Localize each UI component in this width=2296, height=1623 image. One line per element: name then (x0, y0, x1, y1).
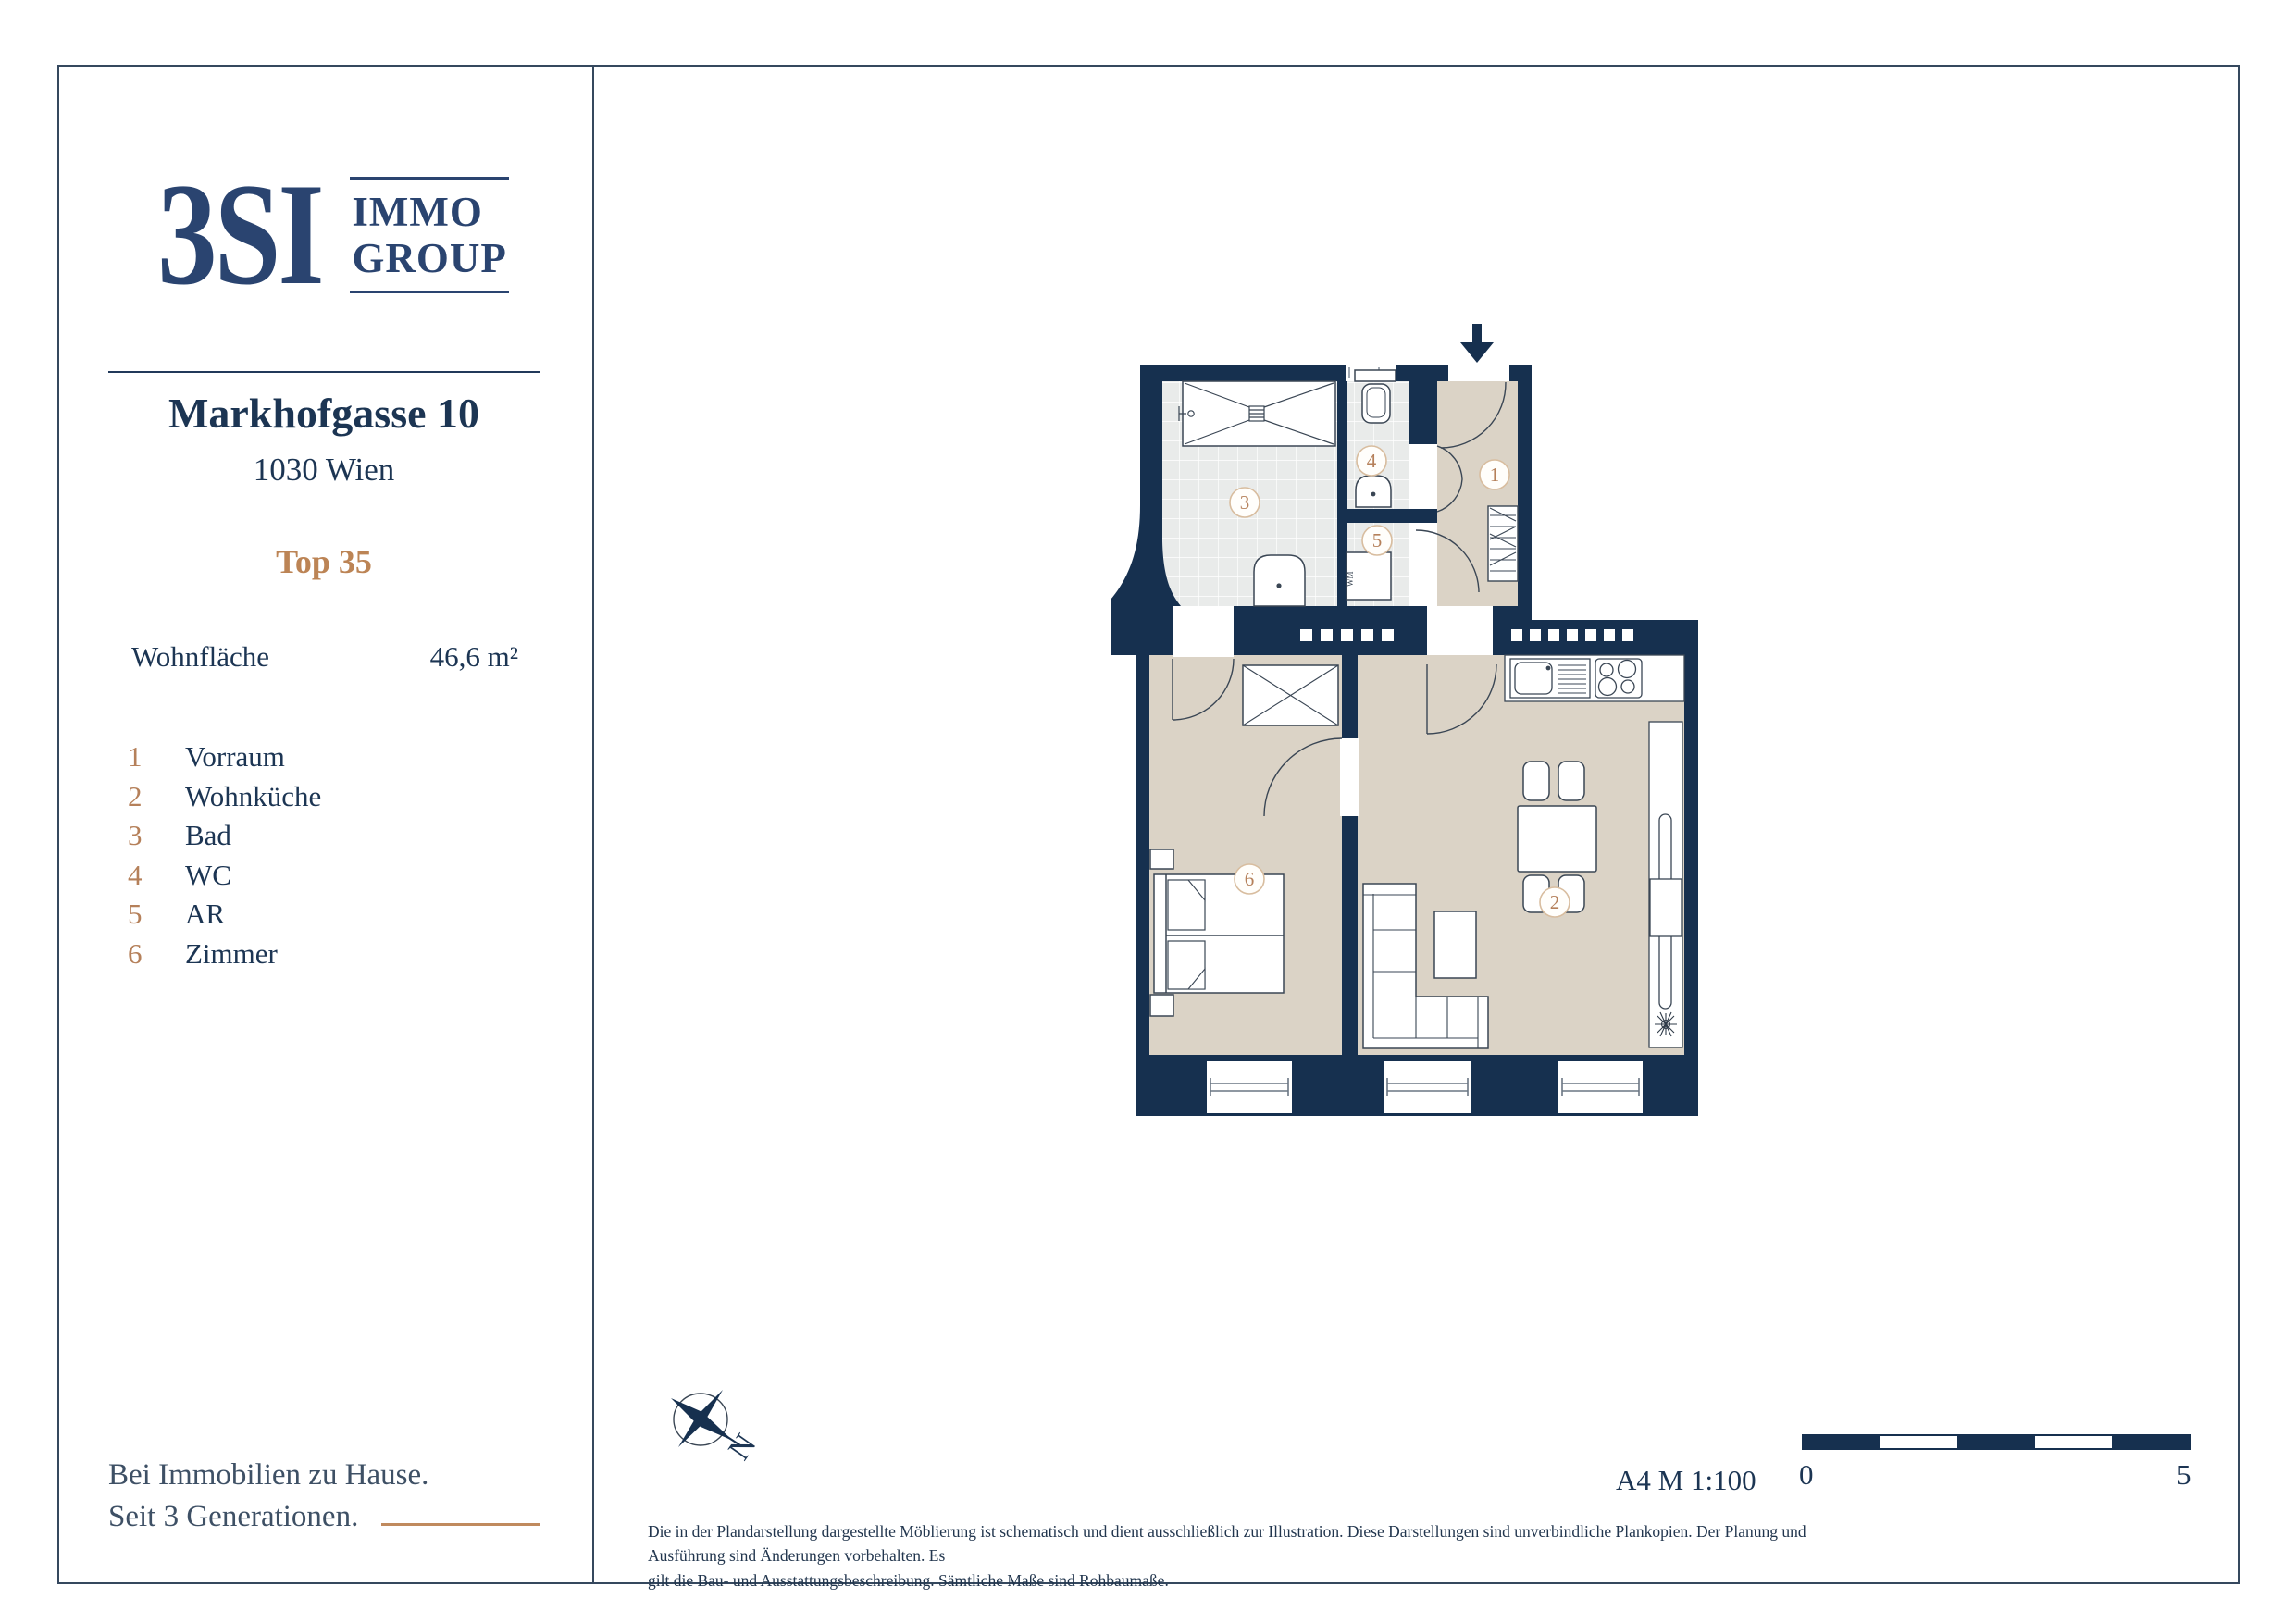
room-badge-5: 5 (1372, 529, 1383, 551)
living-area-row: Wohnfläche 46,6 m² (131, 640, 518, 674)
legend-item-bad: 3 Bad (128, 816, 321, 856)
window-3 (1558, 1061, 1643, 1113)
legend-number: 3 (128, 819, 185, 852)
living-area-value: 46,6 m² (430, 640, 518, 674)
entrance-arrow-icon (1460, 324, 1494, 363)
header-divider (108, 371, 540, 373)
legend-number: 5 (128, 898, 185, 931)
disclaimer-line2: gilt die Bau- und Ausstattungsbeschreibu… (648, 1568, 1832, 1592)
floorplan-page: 3SI IMMO GROUP Markhofgasse 10 1030 Wien… (0, 0, 2296, 1623)
brand-logo: 3SI IMMO GROUP (157, 162, 509, 308)
sideboard (1649, 722, 1682, 1047)
room-badge-1: 1 (1490, 464, 1500, 486)
nightstand-bottom (1150, 995, 1173, 1016)
bad-door-opening (1173, 606, 1234, 657)
plan-scale-note: A4 M 1:100 (1616, 1464, 1756, 1497)
vorraum-wardrobe-icon (1488, 506, 1518, 581)
wc-sink-icon (1356, 476, 1391, 507)
logo-immo-group-text: IMMO GROUP (350, 177, 509, 294)
panel-divider (592, 65, 594, 1584)
wc-door-opening (1409, 444, 1437, 509)
room-badge-3: 3 (1240, 491, 1250, 514)
window-2 (1384, 1061, 1471, 1113)
unit-label: Top 35 (56, 542, 592, 581)
compass-icon: N (659, 1384, 779, 1514)
legend-item-vorraum: 1 Vorraum (128, 737, 321, 777)
legend-item-zimmer: 6 Zimmer (128, 935, 321, 974)
window-1 (1207, 1061, 1292, 1113)
room-badge-4: 4 (1367, 450, 1377, 472)
address-line2: 1030 Wien (56, 452, 592, 489)
legend-label: WC (185, 859, 231, 892)
room-badge-6: 6 (1245, 868, 1255, 890)
scale-bar (1802, 1434, 2191, 1450)
disclaimer-line1: Die in der Plandarstellung dargestellte … (648, 1519, 1832, 1568)
disclaimer-text: Die in der Plandarstellung dargestellte … (648, 1519, 1832, 1592)
logo-sub-line2: GROUP (352, 235, 507, 281)
floorplan-drawing: WM (1101, 324, 1731, 1120)
nightstand-top (1150, 849, 1173, 869)
tagline-accent-line (381, 1523, 540, 1526)
living-area-label: Wohnfläche (131, 640, 269, 674)
scale-bar-start-label: 0 (1799, 1458, 1814, 1492)
legend-number: 6 (128, 937, 185, 971)
tagline-line1: Bei Immobilien zu Hause. (108, 1455, 428, 1496)
legend-item-wc: 4 WC (128, 856, 321, 896)
room-badge-2: 2 (1550, 891, 1560, 913)
kitchen-counter (1505, 655, 1684, 701)
legend-number: 4 (128, 859, 185, 892)
scale-bar-end-label: 5 (2177, 1458, 2191, 1492)
bath-sink-icon (1254, 555, 1305, 606)
chair-icon (1558, 762, 1584, 800)
plant-icon (1655, 1012, 1677, 1036)
logo-3si-text: 3SI (157, 162, 321, 308)
coffee-table-icon (1434, 911, 1476, 978)
legend-item-wohnkueche: 2 Wohnküche (128, 777, 321, 817)
address-line1: Markhofgasse 10 (56, 389, 592, 438)
legend-label: Bad (185, 819, 231, 852)
legend-label: Vorraum (185, 740, 285, 774)
legend-label: Zimmer (185, 937, 278, 971)
dining-table-icon (1518, 806, 1596, 872)
legend-label: AR (185, 898, 225, 931)
compass-north-label: N (722, 1428, 763, 1466)
tagline-line2: Seit 3 Generationen. (108, 1496, 428, 1538)
legend-item-ar: 5 AR (128, 895, 321, 935)
logo-sub-line1: IMMO (352, 189, 507, 235)
room-legend: 1 Vorraum 2 Wohnküche 3 Bad 4 WC 5 AR 6 … (128, 737, 321, 973)
legend-number: 1 (128, 740, 185, 774)
legend-number: 2 (128, 780, 185, 813)
entrance-opening (1448, 363, 1509, 381)
ar-door-opening (1409, 523, 1437, 606)
chair-icon (1523, 762, 1549, 800)
washing-machine-label: WM (1346, 572, 1355, 588)
toilet-cistern (1355, 370, 1396, 381)
legend-label: Wohnküche (185, 780, 321, 813)
zimmer-door-opening (1340, 738, 1359, 816)
